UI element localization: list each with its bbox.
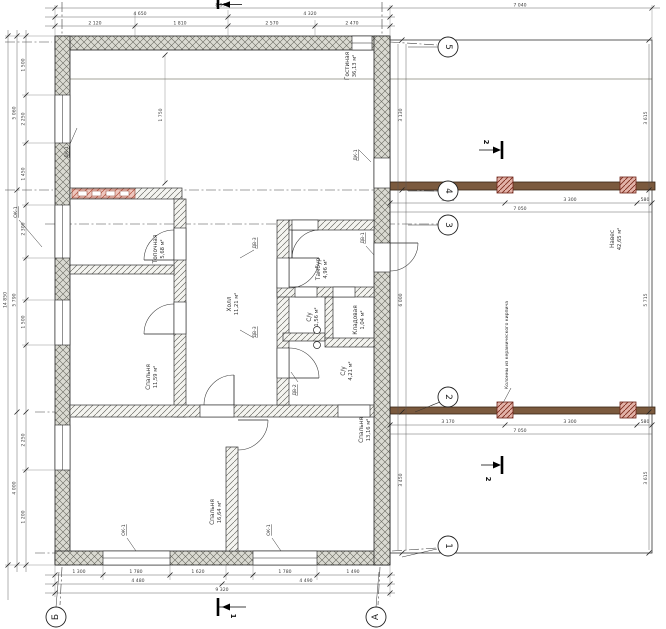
dim-carport-right: 5 715 — [643, 293, 649, 306]
dim-carport-bottom-overall: 7 050 — [513, 206, 526, 212]
room-wc1-name: С/у — [307, 312, 313, 322]
axis-label-5: 5 — [443, 44, 453, 50]
room-storage-area: 1,04 м² — [360, 310, 366, 329]
int-door-tag: ДВ-1 — [360, 232, 366, 243]
dim-carport-bottom-overall: 7 050 — [513, 428, 526, 434]
dim-carport-bottom: 580 — [641, 419, 650, 425]
dim-left-detail: 2 250 — [21, 433, 27, 446]
floor-plan-page: 8 970 7 040 4 650 4 320 2 120 1 810 2 57… — [0, 0, 666, 629]
room-tambour-area: 4,96 м² — [323, 259, 329, 278]
dim-top-detail: 2 570 — [265, 21, 278, 27]
dim-carport-bottom: 580 — [641, 197, 650, 203]
carport-beam-bottom — [390, 407, 655, 414]
window-tag: ОК-1 — [266, 524, 272, 536]
room-boiler-name: Топочная — [153, 235, 159, 265]
dim-left-detail: 2 300 — [21, 222, 27, 235]
window-tag: ОК-1 — [13, 206, 19, 218]
dim-carport-bottom: 3 300 — [563, 419, 576, 425]
room-wc2-name: С/у — [341, 366, 347, 376]
section-marks: 1 2 2 — [218, 0, 502, 619]
room-canopy-name: Навес — [610, 230, 616, 248]
carport — [390, 40, 655, 553]
dim-bottom-overall: 9 320 — [215, 587, 228, 593]
dim-carport-bottom: 3 300 — [563, 197, 576, 203]
dim-top-detail: 2 470 — [345, 21, 358, 27]
dim-bottom-detail: 1 490 — [346, 569, 359, 575]
dim-carport-top: 7 040 — [513, 3, 526, 9]
room-bedroom3-name: Спальня — [359, 417, 365, 443]
room-bedroom1-name: Спальня — [146, 364, 152, 390]
room-bedroom1-area: 11,59 м² — [153, 366, 159, 389]
section-label-2: 2 — [484, 477, 492, 482]
dim-left-detail: 1 500 — [21, 315, 27, 328]
dim-top-detail: 1 810 — [173, 21, 186, 27]
int-door-tag: ДВ-3 — [252, 326, 258, 337]
wall-openings — [55, 36, 390, 565]
brick-column — [620, 402, 636, 418]
axis-bubbles: 5 4 3 2 1 Б А — [46, 37, 458, 627]
ext-door-tag: ДК-1 — [353, 149, 359, 161]
dim-carport-left: 3 130 — [398, 108, 404, 121]
dim-left-mid: 5 790 — [12, 293, 18, 306]
room-living-name: Гостиная — [345, 52, 351, 80]
axis-label-1: 1 — [443, 543, 453, 549]
window-tag: ОК-1 — [121, 524, 127, 536]
columns-note: Колонны из керамического кирпича — [504, 301, 510, 389]
dim-left-detail: 1 200 — [21, 510, 27, 523]
room-tambour-name: Тамбур — [316, 258, 322, 281]
dim-bottom-mid: 4 490 — [299, 578, 312, 584]
dim-interior: 1 750 — [158, 108, 164, 121]
brick-column — [620, 177, 636, 193]
room-bedroom2-area: 16,64 м² — [217, 501, 223, 524]
notes: Колонны из керамического кирпича — [503, 301, 511, 403]
interior-walls — [70, 188, 374, 551]
section-label-1: 1 — [229, 614, 237, 619]
room-storage-name: Кладовая — [353, 305, 359, 334]
dim-bottom-detail: 1 780 — [278, 569, 291, 575]
room-boiler-area: 5,68 м² — [160, 239, 166, 258]
dim-left-mid: 5 060 — [12, 106, 18, 119]
carport-beam-top — [390, 182, 655, 190]
room-bedroom3-area: 13,16 м² — [366, 419, 372, 442]
dim-left-detail: 1 500 — [21, 58, 27, 71]
dim-carport-left: 3 450 — [398, 473, 404, 486]
axis-label-3: 3 — [443, 222, 453, 228]
room-wc2-area: 4,21 м² — [348, 361, 354, 380]
dim-top-mid: 4 320 — [303, 11, 316, 17]
axis-label-a: А — [371, 613, 381, 620]
room-hall-area: 11,21 м² — [234, 293, 240, 316]
floor-plan-drawing: 8 970 7 040 4 650 4 320 2 120 1 810 2 57… — [0, 0, 666, 629]
dim-carport-right: 3 615 — [643, 471, 649, 484]
dim-left-detail: 2 250 — [21, 112, 27, 125]
dim-carport-right: 3 615 — [643, 111, 649, 124]
dim-left-detail: 1 450 — [21, 167, 27, 180]
room-bedroom2-name: Спальня — [210, 499, 216, 525]
dim-carport-left: 6 000 — [398, 293, 404, 306]
axis-label-b: Б — [51, 614, 61, 620]
axis-label-2: 2 — [443, 394, 453, 400]
dim-top-detail: 2 120 — [88, 21, 101, 27]
dim-bottom-mid: 4 480 — [131, 578, 144, 584]
brick-column — [497, 402, 513, 418]
room-living-area: 36,13 м² — [352, 55, 358, 78]
dim-left-mid: 4 000 — [12, 481, 18, 494]
axis-label-4: 4 — [443, 188, 453, 194]
exterior-walls — [55, 36, 390, 565]
sewer-riser — [314, 342, 321, 349]
dim-carport-bottom: 3 170 — [441, 419, 454, 425]
int-door-tag: ДВ-3 — [252, 237, 258, 248]
room-canopy-area: 42,65 м² — [617, 228, 623, 251]
dim-bottom-detail: 1 620 — [191, 569, 204, 575]
dim-bottom-detail: 1 300 — [72, 569, 85, 575]
room-wc1-area: 1,56 м² — [314, 307, 320, 326]
int-door-tag: ДВ-2 — [292, 384, 298, 395]
ext-door-tag: ДК-1 — [64, 146, 70, 158]
dim-bottom-detail: 1 780 — [129, 569, 142, 575]
dim-top-mid: 4 650 — [133, 11, 146, 17]
dim-left-overall: 14 850 — [3, 292, 9, 308]
brick-column — [497, 177, 513, 193]
section-label-2: 2 — [482, 140, 490, 145]
room-hall-name: Холл — [227, 296, 233, 311]
